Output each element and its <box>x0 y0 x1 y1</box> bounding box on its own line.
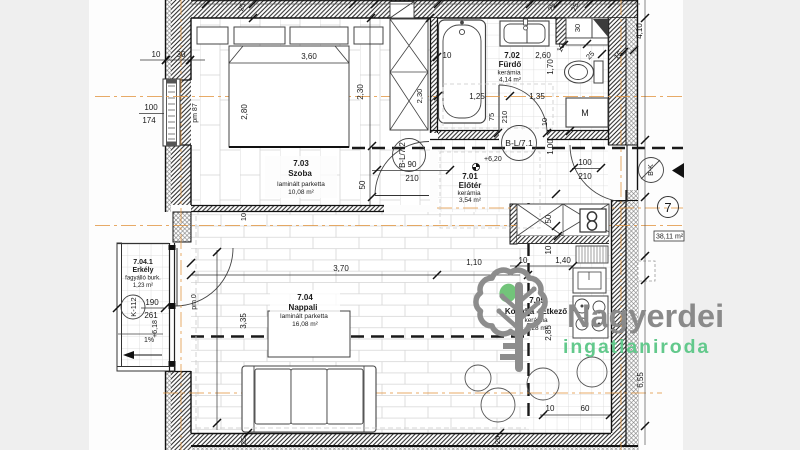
svg-text:laminált parketta: laminált parketta <box>280 313 328 320</box>
svg-text:7.04: 7.04 <box>297 293 313 302</box>
svg-text:1,35: 1,35 <box>529 92 545 101</box>
svg-text:fagyálló burk.: fagyálló burk. <box>125 276 161 282</box>
svg-text:6,55: 6,55 <box>636 372 645 388</box>
svg-text:174: 174 <box>142 116 156 125</box>
svg-text:25: 25 <box>239 437 248 445</box>
svg-text:laminált parketta: laminált parketta <box>277 181 325 188</box>
svg-text:4,14 m²: 4,14 m² <box>499 77 522 84</box>
svg-text:50: 50 <box>358 180 367 189</box>
svg-text:30: 30 <box>573 24 582 32</box>
svg-text:261: 261 <box>144 311 158 320</box>
svg-text:1,70: 1,70 <box>546 59 555 75</box>
svg-text:90: 90 <box>408 160 417 169</box>
svg-text:1,10: 1,10 <box>466 258 482 267</box>
svg-text:10: 10 <box>544 245 553 254</box>
svg-text:10: 10 <box>239 213 248 221</box>
svg-text:M: M <box>581 108 589 118</box>
svg-text:210: 210 <box>405 174 419 183</box>
svg-text:Fürdő: Fürdő <box>499 60 522 69</box>
svg-text:7.04.1: 7.04.1 <box>133 259 153 266</box>
svg-text:pm 87: pm 87 <box>192 103 199 123</box>
svg-text:4,10: 4,10 <box>635 23 644 39</box>
svg-text:60: 60 <box>581 404 590 413</box>
svg-text:pm 0: pm 0 <box>191 294 198 310</box>
svg-text:7: 7 <box>664 200 671 215</box>
svg-text:7.02: 7.02 <box>504 51 520 60</box>
svg-text:100: 100 <box>144 103 158 112</box>
svg-text:7.03: 7.03 <box>293 159 309 168</box>
svg-text:Nappali: Nappali <box>289 303 318 312</box>
svg-text:2,80: 2,80 <box>240 104 249 120</box>
svg-text:+6,20: +6,20 <box>484 156 502 163</box>
svg-text:10: 10 <box>540 118 549 126</box>
svg-text:3,70: 3,70 <box>333 264 349 273</box>
svg-text:16,08 m²: 16,08 m² <box>292 321 318 328</box>
svg-text:210: 210 <box>500 111 509 124</box>
svg-text:kerámia: kerámia <box>457 190 481 197</box>
svg-text:1,25: 1,25 <box>469 92 485 101</box>
svg-text:B-L/7.2: B-L/7.2 <box>398 142 407 168</box>
svg-text:10,08 m²: 10,08 m² <box>288 189 314 196</box>
svg-text:210: 210 <box>578 172 592 181</box>
svg-text:3,60: 3,60 <box>301 52 317 61</box>
svg-text:Erkély: Erkély <box>132 267 153 274</box>
svg-text:1,40: 1,40 <box>555 256 571 265</box>
svg-text:2,60: 2,60 <box>535 51 551 60</box>
svg-text:10: 10 <box>443 51 452 60</box>
svg-text:ingatlaniroda: ingatlaniroda <box>563 336 710 358</box>
svg-text:38,11 m²: 38,11 m² <box>656 234 684 241</box>
svg-text:Szoba: Szoba <box>288 169 312 178</box>
svg-text:+6,18: +6,18 <box>152 320 159 338</box>
svg-text:3,54 m²: 3,54 m² <box>459 197 482 204</box>
svg-text:1%: 1% <box>144 337 154 344</box>
svg-text:1,00: 1,00 <box>546 139 555 155</box>
svg-text:B-L/7.1: B-L/7.1 <box>505 138 533 148</box>
svg-text:2,30: 2,30 <box>356 84 365 100</box>
svg-text:100: 100 <box>578 158 592 167</box>
svg-text:2,85: 2,85 <box>544 325 553 341</box>
svg-text:10: 10 <box>152 50 161 59</box>
svg-text:7.01: 7.01 <box>462 172 478 181</box>
svg-text:50: 50 <box>544 214 553 223</box>
svg-text:K-112: K-112 <box>129 297 138 316</box>
svg-text:75: 75 <box>487 113 496 121</box>
svg-text:3,35: 3,35 <box>239 313 248 329</box>
svg-text:2,30: 2,30 <box>415 89 424 104</box>
svg-text:30: 30 <box>177 50 186 59</box>
svg-text:Előtér: Előtér <box>459 181 482 190</box>
svg-text:25: 25 <box>493 436 502 444</box>
svg-text:Nagyerdei: Nagyerdei <box>567 298 724 334</box>
svg-text:190: 190 <box>145 298 159 307</box>
svg-text:kerámia: kerámia <box>497 70 521 77</box>
svg-text:1,23 m²: 1,23 m² <box>133 283 153 289</box>
